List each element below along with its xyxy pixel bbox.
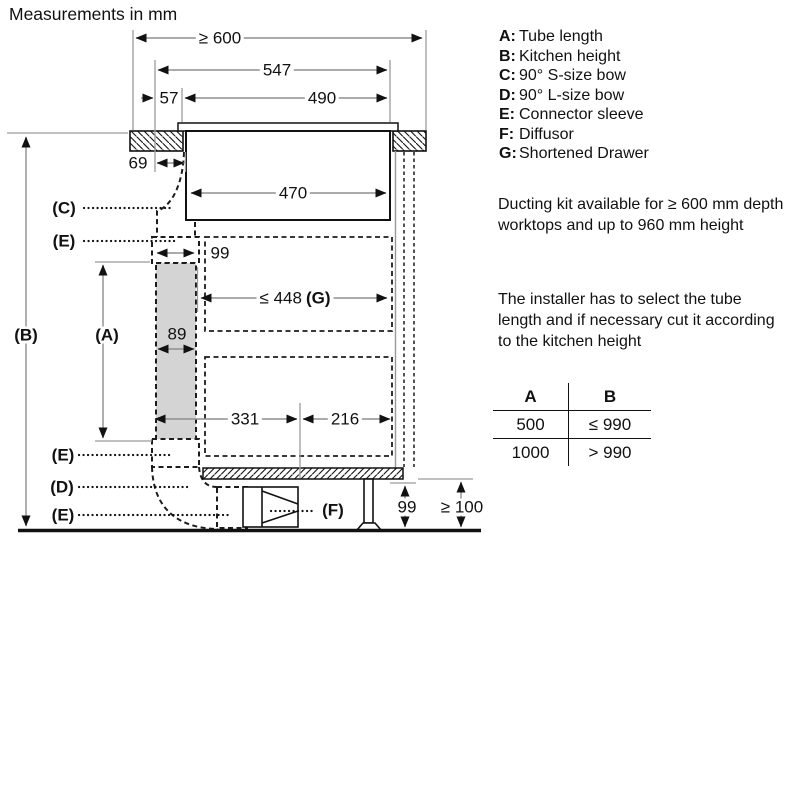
s-bow [157, 152, 184, 238]
callout-f: (F) [322, 502, 344, 519]
dim-label-worktop-depth: ≥ 600 [196, 30, 244, 47]
callout-a: (A) [92, 327, 122, 344]
dim-label-drawer: ≤ 448(G) [257, 290, 334, 307]
dim-label-547: 547 [260, 62, 294, 79]
diffusor [243, 487, 298, 527]
callout-e-top: (E) [53, 233, 76, 250]
tube [156, 263, 196, 439]
cooktop-body [186, 131, 390, 220]
legend-item-g: G:Shortened Drawer [499, 144, 649, 164]
callout-c: (C) [52, 200, 76, 217]
cabinet-bottom-hatch [203, 468, 403, 479]
table-row: 500 ≤ 990 [493, 411, 651, 439]
legend: A:Tube length B:Kitchen height C:90° S-s… [499, 27, 649, 164]
table-cell: > 990 [568, 439, 651, 466]
installation-diagram [0, 0, 800, 800]
table-row: 1000 > 990 [493, 439, 651, 466]
legend-item-f: F:Diffusor [499, 125, 649, 145]
lower-drawer-zone [205, 357, 392, 456]
dim-label-470: 470 [276, 185, 310, 202]
table-header-b: B [568, 383, 651, 410]
legend-item-a: A:Tube length [499, 27, 649, 47]
connector-sleeve-mid [152, 439, 199, 467]
note-installer: The installer has to select the tube len… [498, 289, 788, 352]
dim-label-plinth-height: 99 [395, 499, 420, 516]
dim-label-floor-clearance: ≥ 100 [438, 499, 486, 516]
table-cell: 500 [493, 411, 568, 438]
dim-label-216: 216 [328, 411, 362, 428]
callout-b: (B) [11, 327, 41, 344]
dim-label-69: 69 [129, 155, 148, 172]
cooktop [178, 123, 398, 220]
cabinet-side-lines [396, 151, 415, 470]
legend-item-d: D:90° L-size bow [499, 86, 649, 106]
shortened-drawer-zone [205, 237, 392, 331]
table-cell: 1000 [493, 439, 568, 466]
connector-sleeve-top [152, 237, 199, 263]
table-cell: ≤ 990 [568, 411, 651, 438]
dim-label-57: 57 [160, 90, 179, 107]
cooktop-glass [178, 123, 398, 131]
worktop-hatch-left [130, 131, 183, 151]
dim-label-tube-width: 89 [168, 326, 187, 343]
dim-label-331: 331 [228, 411, 262, 428]
tube-length-table: A B 500 ≤ 990 1000 > 990 [493, 383, 651, 466]
cabinet-leg [357, 479, 381, 530]
callout-e-mid: (E) [52, 447, 75, 464]
legend-item-e: E:Connector sleeve [499, 105, 649, 125]
table-header-row: A B [493, 383, 651, 411]
page-title: Measurements in mm [9, 4, 177, 25]
callout-d: (D) [50, 479, 74, 496]
legend-item-c: C:90° S-size bow [499, 66, 649, 86]
note-ducting-kit: Ducting kit available for ≥ 600 mm depth… [498, 194, 788, 236]
table-header-a: A [493, 383, 568, 410]
dim-label-sleeve-width: 99 [211, 245, 230, 262]
worktop-hatch-right [393, 131, 426, 151]
dim-label-490: 490 [305, 90, 339, 107]
legend-item-b: B:Kitchen height [499, 47, 649, 67]
callout-e-bottom: (E) [52, 507, 75, 524]
